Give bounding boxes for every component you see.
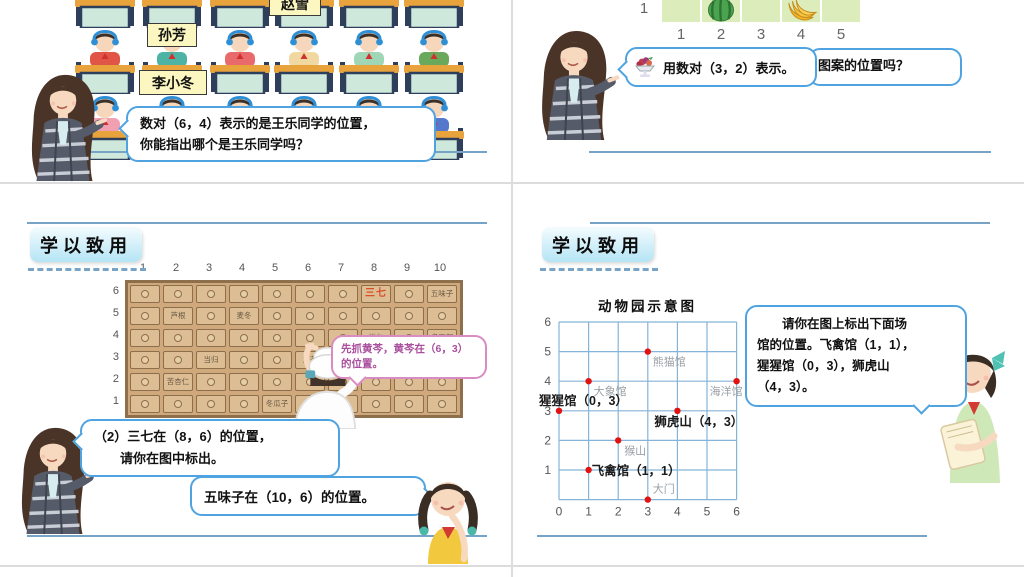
zoo-y-axis-label: 6 <box>544 315 551 329</box>
student-figure <box>210 0 270 28</box>
cabinet-col-label: 4 <box>231 262 253 274</box>
drawer-knob <box>306 312 314 320</box>
drawer-cell <box>394 285 424 303</box>
bubble-text-line1: （2）三七在（8，6）的位置， <box>94 426 326 448</box>
drawer-knob <box>306 334 314 342</box>
drawer-cell: 五味子 <box>427 285 457 303</box>
drawer-cell <box>229 373 259 391</box>
drawer-cell <box>394 307 424 325</box>
zoo-point <box>645 348 651 354</box>
zoo-y-axis-label: 5 <box>544 345 551 359</box>
bottom-page-divider <box>0 565 1024 567</box>
drawer-cell <box>196 395 226 413</box>
section-header-label: 学以致用 <box>40 232 132 258</box>
drawer-knob <box>207 312 215 320</box>
cabinet-col-label: 10 <box>429 262 451 274</box>
slide4-bottom-rule <box>537 535 927 537</box>
watermelon-icon <box>707 0 735 22</box>
vertical-page-divider <box>511 0 513 577</box>
bubble-text-line4: （4，3）。 <box>757 377 955 398</box>
drawer-knob <box>273 334 281 342</box>
drawer-knob <box>405 400 413 408</box>
bubble-text-line2: 你能指出哪个是王乐同学吗？ <box>140 134 422 155</box>
drawer-cell: 苦杏仁 <box>163 373 193 391</box>
drawer-knob <box>174 400 182 408</box>
drawer-knob <box>240 378 248 386</box>
bubble-text-line1: 请你在图上标出下面场 <box>757 314 955 335</box>
drawer-knob <box>141 290 149 298</box>
name-tag-zhaoxue: 赵雪 <box>269 0 321 16</box>
drawer-cell: 麦冬 <box>229 307 259 325</box>
bubble-text-line2: 馆的位置。飞禽馆（1，1）， <box>757 335 955 356</box>
student-figure <box>339 28 399 94</box>
zoo-point-label: 猩猩馆（0，3） <box>538 393 628 408</box>
drawer-knob <box>174 290 182 298</box>
cabinet-row-label: 1 <box>103 395 119 407</box>
drawer-cell <box>163 285 193 303</box>
drawer-knob <box>141 356 149 364</box>
fruit-plate-icon <box>633 56 657 78</box>
slide-4-zoo-map[interactable]: 学以致用 动物园示意图 0123456654321熊猫馆大象馆海洋馆猩猩馆（0，… <box>512 183 1024 566</box>
slide-1-classroom[interactable]: 赵雪 孙芳 李小冬 <box>0 0 512 183</box>
drawer-cell <box>229 395 259 413</box>
drawer-knob <box>207 334 215 342</box>
section-header: 学以致用 <box>30 227 142 262</box>
drawer-knob <box>339 312 347 320</box>
bubble-text-line3: 猩猩馆（0，3），狮虎山 <box>757 356 955 377</box>
drawer-knob <box>174 334 182 342</box>
fruit-col-label: 4 <box>782 26 820 43</box>
zoo-x-axis-label: 5 <box>704 505 711 519</box>
zoo-x-axis-label: 4 <box>674 505 681 519</box>
drawer-knob <box>141 312 149 320</box>
drawer-knob <box>372 400 380 408</box>
name-tag-lixiaodong: 李小冬 <box>139 70 207 95</box>
bubble-text: 用数对（3，2）表示。 <box>663 58 794 77</box>
drawer-cell <box>163 329 193 347</box>
student-figure <box>404 28 464 94</box>
drawer-knob <box>438 400 446 408</box>
drawer-cell <box>361 307 391 325</box>
drawer-cell <box>295 307 325 325</box>
drawer-cell <box>130 395 160 413</box>
drawer-label: 芦根 <box>171 312 186 320</box>
header-dash-underline <box>28 268 146 271</box>
zoo-point <box>645 496 651 502</box>
background-speech-bubble: 图案的位置吗？ <box>808 48 962 86</box>
drawer-knob <box>240 356 248 364</box>
drawer-knob <box>240 334 248 342</box>
drawer-knob <box>405 378 413 386</box>
fruit-col-label: 1 <box>662 26 700 43</box>
student-figure <box>404 0 464 28</box>
zoo-point <box>556 408 562 414</box>
fruit-col-label: 5 <box>822 26 860 43</box>
girl-braids-character <box>400 469 495 564</box>
horizontal-page-divider <box>0 182 1024 184</box>
drawer-knob <box>207 378 215 386</box>
cabinet-col-label: 9 <box>396 262 418 274</box>
girl-speech-bubble: 五味子在（10，6）的位置。 <box>190 476 426 516</box>
drawer-cell <box>262 307 292 325</box>
zoo-point <box>585 378 591 384</box>
cabinet-col-label: 2 <box>165 262 187 274</box>
fruit-row-label: 1 <box>634 0 654 17</box>
cabinet-row-label: 5 <box>103 307 119 319</box>
drawer-cell: 芦根 <box>163 307 193 325</box>
drawer-knob <box>141 334 149 342</box>
drawer-label: 当归 <box>204 356 219 364</box>
zoo-point <box>615 437 621 443</box>
drawer-cell <box>130 285 160 303</box>
fruit-col-label: 3 <box>742 26 780 43</box>
fruit-grid-cell <box>702 0 740 22</box>
fruit-grid-cell <box>662 0 700 22</box>
drawer-knob <box>306 290 314 298</box>
drawer-cell <box>328 307 358 325</box>
drawer-knob <box>438 312 446 320</box>
drawer-cell <box>196 307 226 325</box>
zoo-point-label: 大门 <box>653 482 675 496</box>
drawer-cell: 当归 <box>196 351 226 369</box>
banana-icon <box>785 0 817 22</box>
drawer-cell <box>427 395 457 413</box>
bubble-text-line1: 数对（6，4）表示的是王乐同学的位置， <box>140 113 422 134</box>
zoo-x-axis-label: 1 <box>585 505 592 519</box>
name-tag-zhaoxue-label: 赵雪 <box>281 0 309 14</box>
drawer-knob <box>207 400 215 408</box>
teacher-character <box>14 70 112 183</box>
cabinet-row-label: 6 <box>103 285 119 297</box>
cabinet-col-label: 7 <box>330 262 352 274</box>
drawer-cell <box>196 329 226 347</box>
drawer-knob <box>372 312 380 320</box>
drawer-label: 三七 <box>365 289 387 299</box>
zoo-y-axis-label: 4 <box>544 374 551 388</box>
teacher-figure <box>528 26 620 142</box>
slide-handout-page: 赵雪 孙芳 李小冬 <box>0 0 1024 577</box>
drawer-cell <box>130 307 160 325</box>
bubble-text: 图案的位置吗？ <box>818 58 909 73</box>
student-figure <box>75 0 135 28</box>
drawer-label: 麦冬 <box>237 312 252 320</box>
girl-braids-figure <box>400 469 495 564</box>
name-tag-sunfang: 孙芳 <box>147 23 197 47</box>
zoo-task-speech-bubble: 请你在图上标出下面场 馆的位置。飞禽馆（1，1）， 猩猩馆（0，3），狮虎山 （… <box>745 305 967 407</box>
cabinet-col-label: 8 <box>363 262 385 274</box>
bubble-text-line2: 的位置。 <box>341 357 477 372</box>
student-figure <box>210 28 270 94</box>
slide2-bottom-rule <box>589 151 991 153</box>
drawer-cell <box>130 351 160 369</box>
zoo-point-label: 狮虎山（4，3） <box>653 414 743 429</box>
drawer-cell <box>229 351 259 369</box>
section-header-label: 学以致用 <box>552 232 644 258</box>
front-speech-bubble: 用数对（3，2）表示。 <box>625 47 817 87</box>
drawer-cell <box>295 285 325 303</box>
drawer-label: 五味子 <box>431 290 454 298</box>
drawer-cell <box>130 329 160 347</box>
slide3-top-rule <box>27 222 487 224</box>
zoo-x-axis-label: 6 <box>733 505 740 519</box>
name-tag-sunfang-label: 孙芳 <box>158 25 186 45</box>
zoo-point-label: 海洋馆 <box>710 384 743 398</box>
student-figure <box>339 0 399 28</box>
drawer-cell <box>394 395 424 413</box>
drawer-knob <box>141 378 149 386</box>
bubble-text: 五味子在（10，6）的位置。 <box>204 490 375 505</box>
name-tag-lixiaodong-label: 李小冬 <box>152 73 194 93</box>
bubble-text-line1: 先抓黄芩，黄芩在（6，3） <box>341 342 477 357</box>
cabinet-row-label: 3 <box>103 351 119 363</box>
drawer-knob <box>273 378 281 386</box>
zoo-x-axis-label: 0 <box>556 505 563 519</box>
zoo-point-label: 飞禽馆（1，1） <box>592 463 681 478</box>
drawer-knob <box>273 290 281 298</box>
drawer-label: 苦杏仁 <box>167 378 190 386</box>
teacher-character <box>528 26 620 142</box>
cabinet-col-label: 6 <box>297 262 319 274</box>
cabinet-col-label: 3 <box>198 262 220 274</box>
zoo-coordinate-grid: 0123456654321熊猫馆大象馆海洋馆猩猩馆（0，3）狮虎山（4，3）猴山… <box>534 313 774 525</box>
task-speech-bubble: （2）三七在（8，6）的位置， 请你在图中标出。 <box>80 419 340 477</box>
drawer-knob <box>405 312 413 320</box>
drawer-cell <box>262 285 292 303</box>
teacher-figure <box>14 70 112 183</box>
zoo-y-axis-label: 2 <box>544 433 551 447</box>
drawer-cell <box>130 373 160 391</box>
fruit-grid-cell <box>782 0 820 22</box>
zoo-map-title: 动物园示意图 <box>598 295 697 315</box>
fruit-grid-cell <box>822 0 860 22</box>
drawer-knob <box>372 378 380 386</box>
slide4-top-rule <box>590 222 990 224</box>
drawer-knob <box>273 356 281 364</box>
drawer-knob <box>174 356 182 364</box>
cabinet-row-label: 4 <box>103 329 119 341</box>
drawer-knob <box>339 290 347 298</box>
fruit-col-label: 2 <box>702 26 740 43</box>
cabinet-col-label: 5 <box>264 262 286 274</box>
drawer-cell <box>196 373 226 391</box>
drawer-knob <box>141 400 149 408</box>
slide-3-medicine-cabinet[interactable]: 学以致用 12345678910 654321 三七五味子芦根麦冬桃仁炙百部当归… <box>0 183 512 566</box>
drawer-knob <box>438 378 446 386</box>
drawer-cell <box>427 307 457 325</box>
teacher-speech-bubble: 数对（6，4）表示的是王乐同学的位置， 你能指出哪个是王乐同学吗？ <box>126 106 436 162</box>
header-dash-underline <box>540 268 658 271</box>
drawer-knob <box>207 290 215 298</box>
drawer-knob <box>273 312 281 320</box>
drawer-cell <box>328 285 358 303</box>
drawer-knob <box>240 290 248 298</box>
bubble-text-line2: 请你在图中标出。 <box>94 448 326 470</box>
drawer-cell <box>229 285 259 303</box>
drawer-cell: 三七 <box>361 285 391 303</box>
drawer-knob <box>240 400 248 408</box>
fruit-grid-cell <box>742 0 780 22</box>
drawer-knob <box>405 290 413 298</box>
zoo-point-label: 猴山 <box>624 443 646 457</box>
pharmacist-speech-bubble: 先抓黄芩，黄芩在（6，3） 的位置。 <box>331 335 487 379</box>
zoo-x-axis-label: 3 <box>644 505 651 519</box>
section-header: 学以致用 <box>542 227 654 262</box>
slide-2-fruit-grid[interactable]: 1 12345 <box>512 0 1024 183</box>
drawer-cell <box>229 329 259 347</box>
zoo-point <box>733 378 739 384</box>
student-figure <box>274 28 334 94</box>
cabinet-row-label: 2 <box>103 373 119 385</box>
zoo-x-axis-label: 2 <box>615 505 622 519</box>
zoo-point-label: 熊猫馆 <box>653 355 686 369</box>
drawer-cell <box>163 351 193 369</box>
zoo-point <box>674 408 680 414</box>
drawer-cell <box>163 395 193 413</box>
drawer-cell <box>196 285 226 303</box>
zoo-y-axis-label: 1 <box>544 463 551 477</box>
